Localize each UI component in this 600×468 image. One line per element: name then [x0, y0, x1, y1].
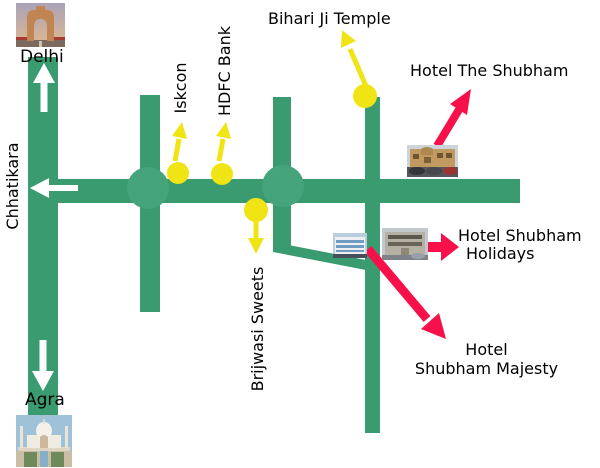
agra-label: Agra [25, 391, 65, 410]
hotel-building-photo [382, 228, 428, 260]
taj-mahal-photo [16, 415, 72, 467]
india-gate-photo [16, 3, 65, 47]
iskcon-arrow-shaft [175, 139, 179, 161]
roundabout-west [127, 167, 169, 209]
hotel-the-shubham-label: Hotel The Shubham [410, 62, 568, 80]
brijwasi-marker [244, 198, 268, 222]
bihari-ji-temple-label: Bihari Ji Temple [268, 10, 391, 28]
hdfc-arrow-icon [216, 122, 231, 139]
delhi-label: Delhi [20, 48, 64, 67]
hdfc-arrow-shaft [219, 139, 223, 161]
hdfc-bank-label: HDFC Bank [216, 26, 234, 116]
chhatikara-label: Chhatikara [4, 142, 22, 229]
hotel-shubham-majesty-line2: Shubham Majesty [404, 359, 569, 378]
brijwasi-sweets-label: Brijwasi Sweets [249, 267, 267, 392]
hotel-location-map: Delhi Agra Chhatikara Iskcon HDFC Bank B… [0, 0, 600, 468]
brijwasi-arrow-icon [248, 238, 264, 254]
hdfc-marker [211, 163, 233, 185]
hotel-the-shubham-photo [407, 145, 458, 177]
hotel-shubham-holidays-photo [333, 233, 367, 258]
hotel-shubham-holidays-line1: Hotel Shubham [458, 226, 582, 245]
hotel-shubham-majesty-label: Hotel Shubham Majesty [404, 340, 569, 378]
hotel-shubham-majesty-line1: Hotel [465, 340, 507, 359]
hotel-shubham-holidays-line2: Holidays [466, 245, 582, 263]
holidays-arrow-icon [441, 233, 459, 261]
hotel-shubham-arrow-shaft [437, 108, 460, 146]
iskcon-marker [167, 162, 189, 184]
bihari-marker [353, 84, 377, 108]
bihari-arrow-shaft [350, 49, 366, 86]
iskcon-arrow-icon [172, 122, 187, 139]
iskcon-label: Iskcon [172, 62, 190, 113]
hotel-shubham-holidays-label: Hotel Shubham Holidays [458, 227, 582, 263]
bihari-arrow-icon [341, 30, 356, 48]
roundabout-east [262, 165, 304, 207]
